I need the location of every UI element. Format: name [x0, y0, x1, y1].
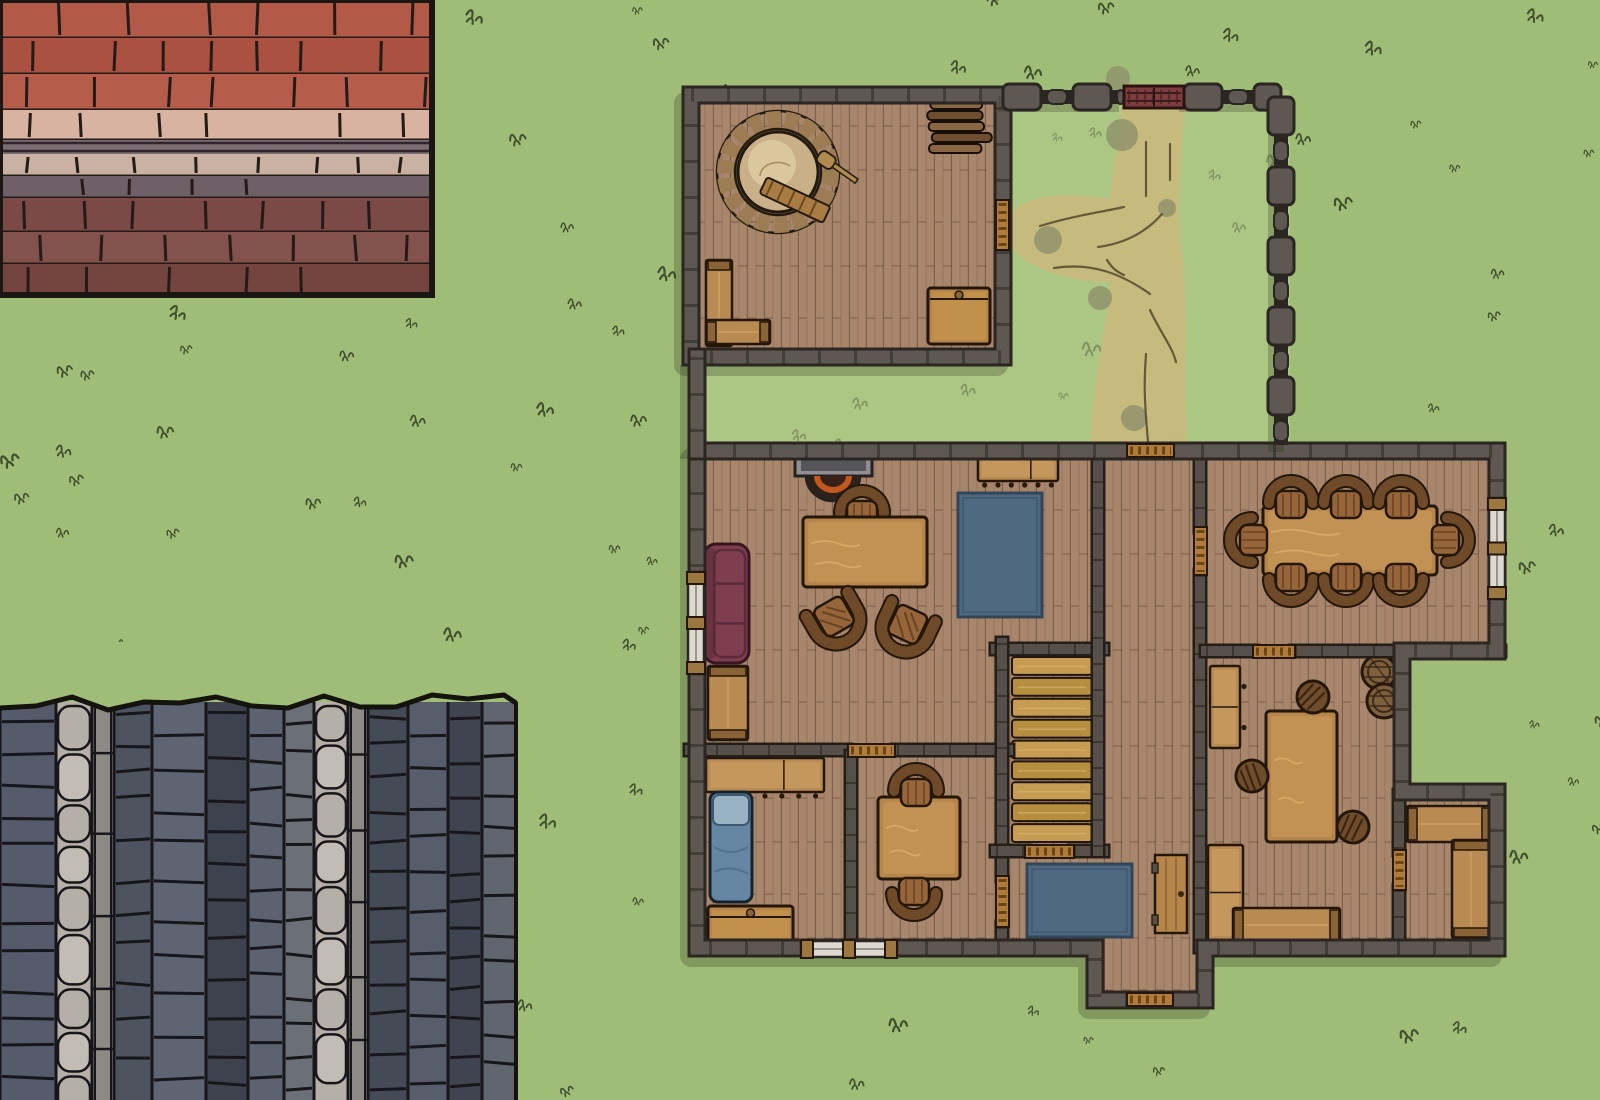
side-bench	[708, 666, 748, 740]
courtyard-gate	[1124, 86, 1184, 108]
roof-red-shingles	[0, 0, 432, 295]
dining-chair	[1379, 481, 1423, 518]
work-table	[1266, 711, 1337, 842]
wall-post	[1274, 351, 1288, 371]
dining-chair	[1324, 481, 1368, 518]
window	[1488, 498, 1506, 599]
dining-chair	[1379, 564, 1423, 601]
stairs-door	[1025, 845, 1074, 858]
wall-post	[1274, 211, 1288, 231]
stool	[1296, 680, 1330, 714]
wall-post	[1268, 377, 1294, 415]
dining-chair	[1432, 518, 1469, 562]
porch-door	[1127, 993, 1173, 1006]
store-room-door	[1393, 850, 1406, 890]
wall-post	[1268, 307, 1294, 345]
dining-door	[1194, 527, 1207, 575]
dining-chair	[1269, 564, 1313, 601]
grass-notch	[1409, 657, 1504, 788]
open-door	[1152, 855, 1187, 933]
workshop-sideboard	[1210, 666, 1247, 748]
study-door	[996, 876, 1009, 927]
small-rug	[1027, 864, 1132, 937]
battle-map-canvas	[0, 0, 1600, 1100]
wall-post	[1228, 90, 1248, 104]
sofa	[704, 544, 749, 663]
corner-bench-horizontal	[706, 320, 770, 344]
window	[801, 940, 897, 958]
roof-slate-shingles	[0, 642, 516, 1100]
wall-post	[1047, 90, 1067, 104]
bed	[710, 792, 752, 902]
storage-chest	[928, 288, 990, 344]
study-table	[878, 797, 960, 879]
dining-chair	[1324, 564, 1368, 601]
battle-map-stage	[0, 0, 1600, 1100]
living-room-table	[803, 517, 927, 587]
chair	[894, 769, 938, 806]
window	[687, 572, 705, 674]
dining-chair	[1230, 518, 1267, 562]
oven-room-door	[996, 200, 1009, 250]
wall-post	[1274, 141, 1288, 161]
wall-post	[1268, 97, 1294, 135]
wall-post	[1274, 421, 1288, 441]
bedroom-door	[848, 744, 895, 757]
wall-post	[1073, 84, 1111, 110]
staircase	[1012, 657, 1092, 842]
wall-post	[1274, 281, 1288, 301]
store-bench	[1452, 840, 1490, 938]
bedroom-chest	[708, 906, 793, 942]
chair	[892, 878, 936, 915]
store-bench	[1407, 806, 1492, 842]
large-rug	[958, 493, 1042, 617]
wall-post	[1184, 84, 1222, 110]
wall-post	[1268, 237, 1294, 275]
wall-post	[1003, 84, 1041, 110]
dining-workshop-door	[1253, 645, 1295, 658]
front-door	[1127, 444, 1174, 457]
dining-chair	[1269, 481, 1313, 518]
workshop-bench	[1233, 908, 1340, 942]
wall-post	[1268, 167, 1294, 205]
